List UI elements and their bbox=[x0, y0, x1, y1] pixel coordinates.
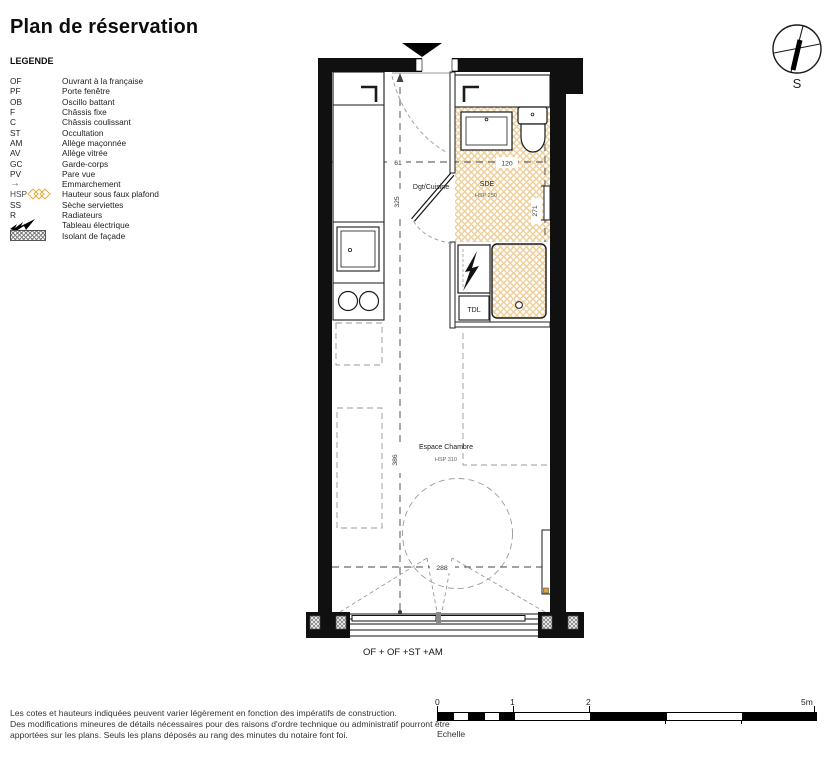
legend-abbr: AM bbox=[10, 138, 62, 148]
legend-item: Isolant de façade bbox=[10, 230, 260, 240]
room-hsp-sde: HSP 250 bbox=[475, 193, 497, 199]
legend-label: Isolant de façade bbox=[62, 231, 125, 241]
legend-abbr: PF bbox=[10, 86, 62, 96]
legend-label: Châssis fixe bbox=[62, 107, 107, 117]
towel-radiator bbox=[544, 186, 550, 220]
legend-label: Tableau électrique bbox=[62, 220, 129, 230]
floor-plan: Dgt/Cuisine SDE HSP 250 Espace Chambre H… bbox=[295, 38, 595, 668]
legend-abbr: ST bbox=[10, 128, 62, 138]
tdl-label: TDL bbox=[467, 307, 480, 314]
scale-bar-strip bbox=[437, 712, 817, 721]
kitchen-fixtures bbox=[333, 72, 384, 320]
dim-288: 288 bbox=[436, 565, 448, 572]
legend-label: Ouvrant à la française bbox=[62, 76, 143, 86]
room-label-kitchen: Dgt/Cuisine bbox=[413, 184, 449, 191]
page-title: Plan de réservation bbox=[10, 16, 198, 39]
compass-south-label: S bbox=[793, 76, 802, 91]
legend-item: PVPare vue bbox=[10, 169, 260, 179]
legend-item: OFOuvrant à la française bbox=[10, 76, 260, 86]
legend-item: AVAllège vitrée bbox=[10, 148, 260, 158]
legend-item: FChâssis fixe bbox=[10, 107, 260, 117]
legend-label: Pare vue bbox=[62, 169, 95, 179]
legend-abbr: GC bbox=[10, 159, 62, 169]
shower-drain bbox=[516, 302, 523, 309]
cooktop-burner bbox=[360, 292, 379, 311]
sde-door-leaf bbox=[413, 174, 453, 220]
legend-abbr: OB bbox=[10, 97, 62, 107]
dim-120: 120 bbox=[501, 161, 513, 168]
dim-325: 325 bbox=[394, 196, 401, 208]
legend: OFOuvrant à la française PFPorte fenêtre… bbox=[10, 76, 260, 241]
legend-label: Garde-corps bbox=[62, 159, 108, 169]
sde-shelf bbox=[455, 75, 550, 107]
legend-label: Oscillo battant bbox=[62, 97, 115, 107]
dimension-arrow bbox=[397, 73, 404, 82]
room-label-sde: SDE bbox=[480, 181, 495, 188]
legend-label: Allège maçonnée bbox=[62, 138, 126, 148]
turning-circle bbox=[403, 479, 513, 589]
reservation-plan-page: Plan de réservation LEGENDE OFOuvrant à … bbox=[0, 0, 834, 760]
legend-item: OBOscillo battant bbox=[10, 97, 260, 107]
legend-item: AMAllège maçonnée bbox=[10, 138, 260, 148]
scale-tick-label: 5m bbox=[801, 697, 813, 707]
legend-label: Porte fenêtre bbox=[62, 86, 110, 96]
legend-item: STOccultation bbox=[10, 127, 260, 137]
cooktop-burner bbox=[339, 292, 358, 311]
legend-heading: LEGENDE bbox=[10, 56, 54, 66]
legend-label: Occultation bbox=[62, 128, 104, 138]
legend-label: Sèche serviettes bbox=[62, 200, 123, 210]
legend-abbr: SS bbox=[10, 200, 62, 210]
door-frame-posts bbox=[416, 59, 458, 71]
compass: S bbox=[765, 18, 829, 94]
dim-61: 61 bbox=[394, 160, 402, 167]
hsp-abbr: HSP bbox=[10, 189, 27, 199]
dim-271: 271 bbox=[532, 205, 539, 217]
sde-door-swing bbox=[414, 221, 453, 244]
legend-label: Allège vitrée bbox=[62, 148, 108, 158]
compass-needle-icon bbox=[793, 40, 800, 70]
legend-item: CChâssis coulissant bbox=[10, 117, 260, 127]
window-type-label: OF + OF +ST +AM bbox=[363, 647, 443, 658]
hsp-diamond-icon bbox=[39, 189, 50, 200]
legend-abbr: OF bbox=[10, 76, 62, 86]
legend-abbr: F bbox=[10, 107, 62, 117]
legend-label: Radiateurs bbox=[62, 210, 102, 220]
step-arrow-icon: → bbox=[10, 180, 20, 188]
radiator bbox=[542, 530, 551, 594]
legend-label: Emmarchement bbox=[62, 179, 121, 189]
legend-label: Hauteur sous faux plafond bbox=[62, 189, 159, 199]
legend-item: Tableau électrique bbox=[10, 220, 260, 230]
room-label-chambre: Espace Chambre bbox=[419, 444, 473, 451]
toilet-bowl bbox=[521, 124, 545, 152]
legend-abbr: C bbox=[10, 117, 62, 127]
room-hsp-chambre: HSP 310 bbox=[435, 457, 457, 463]
entrance-marker-icon bbox=[402, 43, 442, 57]
legend-abbr: AV bbox=[10, 148, 62, 158]
scale-label: Echelle bbox=[437, 729, 465, 739]
legend-item: →Emmarchement bbox=[10, 179, 260, 189]
legend-item: HSPHauteur sous faux plafond bbox=[10, 189, 260, 199]
dim-386: 386 bbox=[392, 454, 399, 466]
legend-item: SSSèche serviettes bbox=[10, 200, 260, 210]
legend-item: GCGarde-corps bbox=[10, 158, 260, 168]
legend-item: PFPorte fenêtre bbox=[10, 86, 260, 96]
radiator-mark bbox=[544, 588, 549, 593]
insulation-swatch-icon bbox=[10, 230, 46, 241]
scale-bar: 0 1 2 5m Echelle bbox=[437, 697, 815, 747]
legend-label: Châssis coulissant bbox=[62, 117, 131, 127]
